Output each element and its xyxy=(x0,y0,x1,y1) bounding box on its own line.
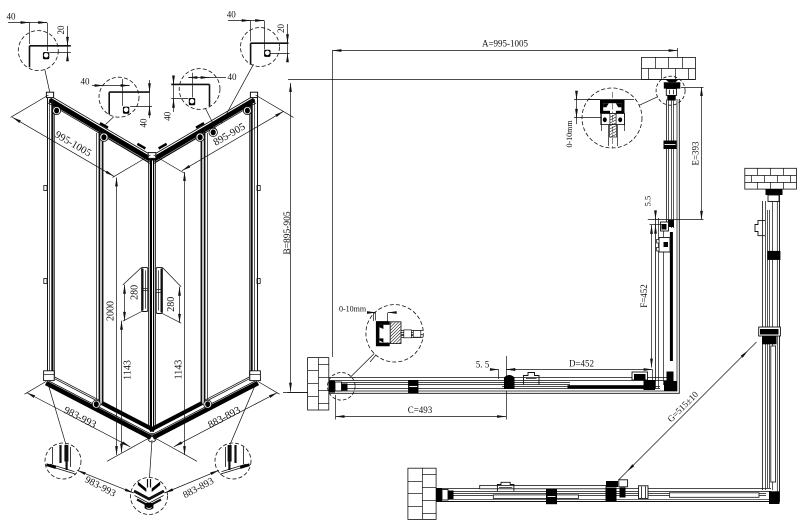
svg-text:C=493: C=493 xyxy=(408,405,433,415)
svg-text:E=393: E=393 xyxy=(690,141,700,166)
svg-text:40: 40 xyxy=(228,72,238,82)
svg-text:F=452: F=452 xyxy=(639,284,649,308)
svg-text:40: 40 xyxy=(138,118,148,128)
svg-text:20: 20 xyxy=(56,25,66,35)
svg-text:40: 40 xyxy=(7,12,17,22)
svg-text:20: 20 xyxy=(276,24,286,34)
svg-text:280: 280 xyxy=(166,297,177,312)
svg-text:0-10mm: 0-10mm xyxy=(339,305,367,314)
svg-text:5. 5: 5. 5 xyxy=(476,359,490,369)
svg-text:0-10mm: 0-10mm xyxy=(565,120,574,148)
svg-text:5.5: 5.5 xyxy=(642,196,652,207)
svg-text:40: 40 xyxy=(227,10,237,20)
svg-text:40: 40 xyxy=(81,76,91,86)
svg-text:280: 280 xyxy=(129,285,140,300)
svg-text:1143: 1143 xyxy=(173,360,184,380)
svg-text:D=452: D=452 xyxy=(569,358,594,368)
svg-text:A=995-1005: A=995-1005 xyxy=(482,39,529,49)
svg-text:2000: 2000 xyxy=(105,301,116,321)
svg-text:B=895-905: B=895-905 xyxy=(283,211,293,255)
svg-text:1143: 1143 xyxy=(123,360,134,380)
svg-text:40: 40 xyxy=(162,111,172,121)
